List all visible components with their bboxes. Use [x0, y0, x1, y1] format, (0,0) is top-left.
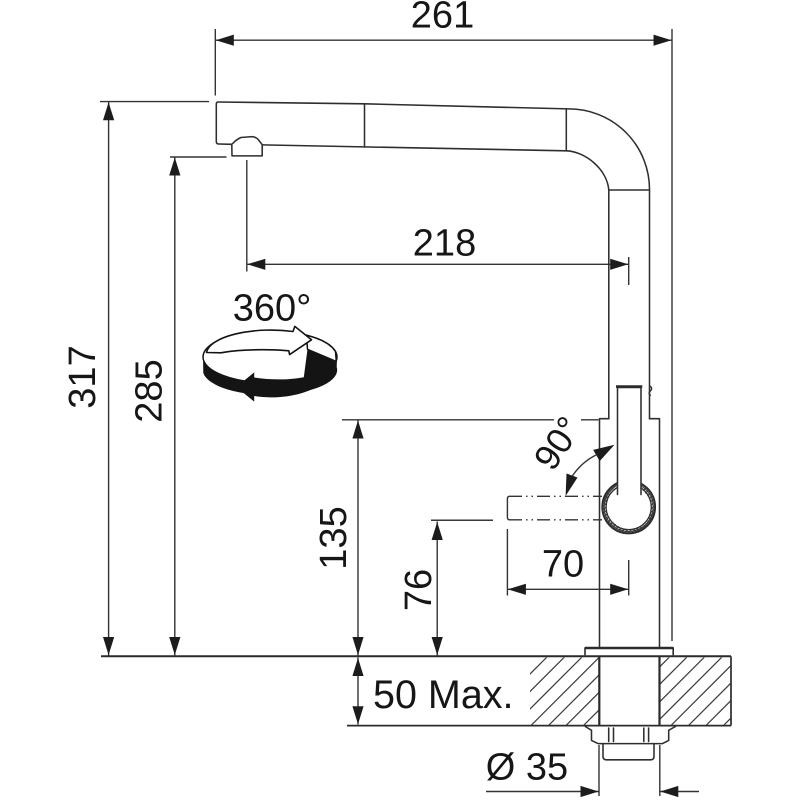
- svg-text:285: 285: [129, 359, 171, 422]
- svg-text:76: 76: [398, 569, 440, 611]
- svg-text:317: 317: [62, 345, 104, 408]
- svg-text:218: 218: [413, 223, 476, 265]
- svg-text:70: 70: [542, 544, 584, 586]
- svg-text:135: 135: [313, 506, 355, 569]
- svg-text:261: 261: [411, 0, 474, 37]
- svg-text:360°: 360°: [233, 288, 312, 330]
- svg-text:50 Max.: 50 Max.: [373, 673, 514, 717]
- svg-text:Ø 35: Ø 35: [486, 747, 568, 789]
